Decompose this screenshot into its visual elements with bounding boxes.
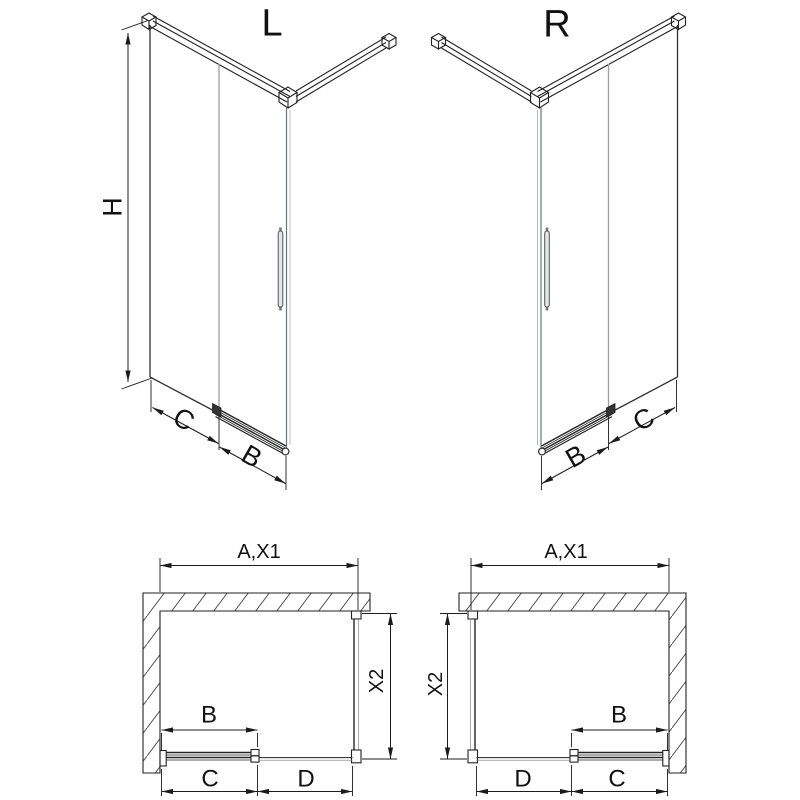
technical-drawing-canvas: L R H C B C B A,X1 A,X1 X2 X2 B B C D D … bbox=[0, 0, 800, 800]
label-height-h: H bbox=[97, 197, 127, 217]
plan-right-label-ax1: A,X1 bbox=[544, 541, 587, 563]
wall-right-plan bbox=[459, 593, 686, 773]
plan-right-label-x2: X2 bbox=[425, 672, 447, 696]
plan-left-label-x2: X2 bbox=[366, 669, 388, 693]
iso-left-label-b: B bbox=[236, 439, 267, 474]
iso-right-label-b: B bbox=[560, 439, 591, 474]
iso-left-label-c: C bbox=[168, 402, 200, 438]
dimension-labels: L R H C B C B A,X1 A,X1 X2 X2 B B C D D … bbox=[97, 2, 659, 792]
plan-right-label-b: B bbox=[611, 701, 627, 728]
plan-left-label-d: D bbox=[297, 765, 314, 792]
iso-right-label-c: C bbox=[628, 402, 660, 438]
plan-left-label-b: B bbox=[201, 701, 217, 728]
shower-enclosure-diagram: L R H C B C B A,X1 A,X1 X2 X2 B B C D D … bbox=[0, 0, 800, 800]
wall-left-plan bbox=[143, 593, 370, 773]
iso-left-title: L bbox=[261, 2, 282, 44]
iso-right-title: R bbox=[543, 3, 570, 45]
plan-left-label-c: C bbox=[201, 765, 218, 792]
plan-right-label-d: D bbox=[514, 765, 531, 792]
plan-left-label-ax1: A,X1 bbox=[237, 541, 280, 563]
plan-right-label-c: C bbox=[608, 765, 625, 792]
